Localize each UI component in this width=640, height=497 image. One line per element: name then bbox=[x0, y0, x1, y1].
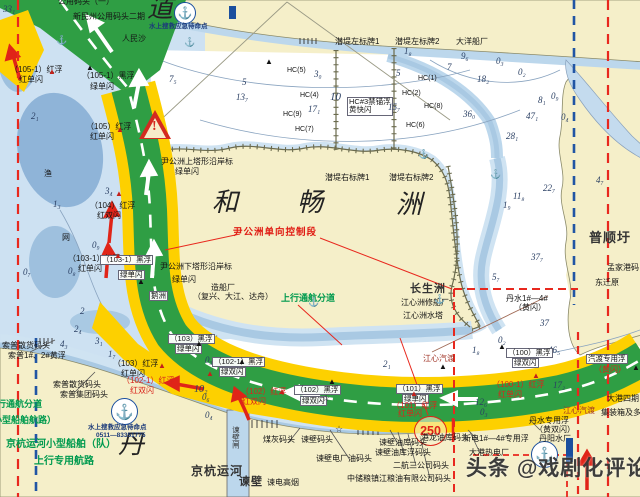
label-hc9: HC(9) bbox=[283, 111, 302, 119]
label-suopu-group-pier: 索普集团码头 bbox=[60, 391, 108, 400]
label-suopu-bulk-pier-2: 索普散货码头 bbox=[53, 381, 101, 390]
label-hc2: HC(2) bbox=[402, 90, 421, 98]
label-hc4: HC(4) bbox=[300, 92, 319, 100]
label-buoy-105-1-red-flash: 红单闪 bbox=[19, 76, 43, 85]
red-buoy-icon: ▲ bbox=[115, 190, 123, 198]
depth-value: 4₃ bbox=[60, 339, 68, 349]
blue-beacon-mark bbox=[229, 6, 236, 19]
anchorage-icon: ⚓ bbox=[184, 38, 195, 47]
depth-value: 37 bbox=[540, 318, 549, 328]
red-buoy-icon: ▲ bbox=[206, 370, 214, 378]
label-dayang-shipyard: 大洋船厂 bbox=[456, 38, 488, 47]
depth-value: 3₁ bbox=[95, 336, 103, 346]
label-channel-dao: 道 bbox=[147, 0, 173, 23]
label-ezhou: 鹅洲 bbox=[149, 291, 168, 301]
label-suopu-buoys: 索普1#、2#黄浮 bbox=[8, 352, 66, 361]
label-buoy-102-1-red: （102-1）红浮 bbox=[122, 377, 174, 386]
depth-value: 2 bbox=[80, 306, 85, 316]
warning-triangle-icon: ! bbox=[139, 110, 171, 140]
label-buoy-100-1-red: （100-1）红浮 bbox=[492, 381, 544, 390]
depth-value: 1₃ bbox=[53, 199, 61, 209]
depth-value: 7 bbox=[447, 62, 452, 72]
label-buoy-105-1-black: （105-1）黑浮 bbox=[82, 72, 134, 81]
black-buoy-icon: ▲ bbox=[265, 58, 273, 66]
depth-value: 0₇ bbox=[23, 267, 31, 277]
rescue-anchor-logo-bottom: ⚓ bbox=[111, 398, 138, 425]
anchorage-icon: ⚓ bbox=[490, 170, 501, 179]
label-one-way-control-section: 尹公洲单向控制段 bbox=[233, 228, 317, 239]
depth-value: 5₇ bbox=[492, 272, 500, 282]
label-downbound-fairway: 下行通航分道 bbox=[0, 399, 42, 409]
light-star-icon: ☆ bbox=[322, 394, 330, 403]
label-jianbi-power-oil-pier: 谏壁电厂油码头 bbox=[316, 455, 372, 464]
depth-value: 2₄ bbox=[74, 324, 82, 334]
depth-value: 28₁ bbox=[506, 131, 518, 141]
label-jiangxinzhou-watertower: 江心洲水塔 bbox=[403, 312, 443, 321]
label-buoy-105-1-black-flash: 绿单闪 bbox=[90, 83, 114, 92]
label-container-berth: 集装箱及多 bbox=[601, 409, 640, 418]
label-yingongzhou-upper-flash: 绿单闪 bbox=[175, 168, 199, 177]
label-grand-canal-small-vessels: 京杭运河小型船舶（队） bbox=[6, 439, 116, 450]
anchorage-icon: ⚓ bbox=[434, 295, 445, 304]
label-jianbi-oil-depot-pier: 谏壁油库码头 bbox=[379, 439, 427, 448]
label-yingongzhou-lower-mark: 尹公洲下塔形沿岸标 bbox=[160, 263, 232, 272]
label-buoy-103-black: （103）黑浮 bbox=[168, 334, 215, 344]
depth-value: 0₉ bbox=[92, 240, 100, 250]
label-ferry-special-buoy-flash: （黄闪） bbox=[594, 366, 626, 375]
label-buoy-100-black-flash: 绿双闪 bbox=[512, 358, 539, 368]
depth-value: 15₇ bbox=[388, 102, 400, 112]
label-buoy-100-black: （100）黑浮 bbox=[506, 348, 553, 358]
depth-value: 1₇ bbox=[108, 349, 116, 359]
label-buoy-104-red: （104）红浮 bbox=[90, 202, 135, 211]
depth-value: 5 bbox=[396, 68, 401, 78]
depth-value: 12₆ bbox=[475, 397, 487, 407]
depth-value: 7₅ bbox=[169, 74, 177, 84]
nautical-chart: ! ⚓ ⚓ ⚓ 250 头条 @戏剧化评论员 33₁公用码头（一）新民州公用码头… bbox=[0, 0, 640, 497]
anchorage-icon: ⚓ bbox=[308, 298, 319, 307]
red-buoy-icon: ▲ bbox=[158, 362, 166, 370]
label-jianbi: 谏壁 bbox=[239, 476, 263, 488]
depth-value: 37₇ bbox=[531, 252, 543, 262]
black-buoy-icon: ▲ bbox=[328, 378, 336, 386]
label-buoy-102-1-red-flash: 红双闪 bbox=[130, 387, 154, 396]
red-buoy-icon: ▲ bbox=[278, 388, 286, 396]
label-meihui-pier: 煤灰码头 bbox=[263, 436, 295, 445]
depth-value: 18₂ bbox=[477, 74, 489, 84]
label-fishing-yu: 渔 bbox=[44, 170, 52, 179]
label-ganglong-pier: 港龙油库码头 bbox=[421, 434, 469, 443]
label-rescue-phone: 0511—83351775 bbox=[96, 432, 146, 439]
depth-value: 0₂ bbox=[518, 67, 526, 77]
label-island-zhou: 洲 bbox=[396, 190, 422, 219]
label-mengjiagang: 孟家港码 bbox=[607, 264, 639, 273]
label-qiandi-left-1: 潜堤左标牌1 bbox=[335, 38, 379, 47]
label-rescue-bottom: 水上搜救应急待命点 bbox=[88, 424, 147, 431]
label-hc1: HC(1) bbox=[418, 75, 437, 83]
label-buoy-102-red-flash: 红双闪 bbox=[242, 398, 266, 407]
label-buoy-102-black: （102）黑浮 bbox=[294, 385, 341, 395]
label-buoy-101-black: （101）黑浮 bbox=[396, 384, 443, 394]
label-buoy-101-red-flash: 红单闪 bbox=[398, 410, 422, 419]
label-buoy-105-red-flash: 红单闪 bbox=[90, 133, 114, 142]
depth-value: 4₇ bbox=[596, 175, 604, 185]
depth-value: 11₈ bbox=[513, 191, 524, 201]
black-buoy-icon: ▲ bbox=[137, 278, 145, 286]
depth-value: 17₂ bbox=[553, 380, 565, 390]
label-hc5: HC(5) bbox=[287, 67, 306, 75]
depth-value: 5 bbox=[242, 77, 247, 87]
label-xinminzhou-pier2: 新民州公用码头二期 bbox=[73, 13, 145, 22]
red-buoy-icon: ▲ bbox=[410, 390, 418, 398]
rescue-anchor-logo-top: ⚓ bbox=[174, 2, 196, 24]
label-qiandi-right-1: 潜堤右标牌1 bbox=[325, 174, 369, 183]
depth-value: 0₄ bbox=[561, 112, 569, 122]
label-small-vessel-route: （小型船舶航路） bbox=[0, 415, 56, 425]
depth-value: 0₉ bbox=[551, 91, 559, 101]
depth-value: 0₃ bbox=[496, 56, 504, 66]
label-dongqianyuan: 东迁原 bbox=[595, 279, 619, 288]
label-jianbi-oil-depot-float: 谏壁油库浮码头 bbox=[375, 449, 431, 458]
depth-value: 13₇ bbox=[236, 92, 248, 102]
label-pushunwei: 普顺圩 bbox=[589, 231, 631, 246]
label-suopu-bulk-pier: 索普散货码头 bbox=[2, 342, 50, 351]
black-buoy-icon: ▲ bbox=[632, 364, 640, 372]
depth-value: 2₁ bbox=[31, 111, 39, 121]
warning-exclamation: ! bbox=[152, 119, 157, 135]
red-buoy-icon: ▲ bbox=[116, 126, 124, 134]
label-grand-canal: 京杭运河 bbox=[191, 465, 243, 478]
black-buoy-icon: ▲ bbox=[498, 343, 506, 351]
label-qiandi-left-2: 潜堤左标牌2 bbox=[395, 38, 439, 47]
anchorage-icon: ⚓ bbox=[56, 36, 67, 45]
red-buoy-icon: ▲ bbox=[114, 252, 122, 260]
light-star-icon: ☆ bbox=[335, 425, 343, 434]
red-buoy-icon: ▲ bbox=[532, 372, 540, 380]
label-zhongchuliang-pier: 中储粮镇江粮油有限公司码头 bbox=[347, 475, 451, 484]
label-dagang-phase4: 大港四期 bbox=[607, 395, 639, 404]
label-buoy-103-1-red-flash: 红单闪 bbox=[78, 265, 102, 274]
label-shipyard-names: （复兴、大江、达舟） bbox=[193, 293, 273, 302]
depth-value: 36₀ bbox=[463, 109, 475, 119]
anchorage-icon: ⚓ bbox=[418, 150, 429, 159]
label-hc8: HC(8) bbox=[424, 103, 443, 111]
label-rescue-top: 水上搜救应急待命点 bbox=[149, 23, 208, 30]
red-buoy-icon: ▲ bbox=[48, 68, 56, 76]
black-buoy-icon: ▲ bbox=[238, 358, 246, 366]
label-yingongzhou-upper-mark: 尹公洲上塔形沿岸标 bbox=[161, 158, 233, 167]
depth-value: 22₇ bbox=[543, 183, 555, 193]
label-ferry-special-buoy: 汽渡专用浮 bbox=[586, 354, 628, 364]
label-buoy-103-1-black: （103-1）黑浮 bbox=[100, 255, 153, 265]
label-upbound-special-route: 上行专用航路 bbox=[34, 456, 94, 467]
label-island-chang: 畅 bbox=[297, 188, 323, 217]
label-qiandi-right-2: 潜堤右标牌2 bbox=[389, 174, 433, 183]
depth-value: 1₈ bbox=[472, 345, 480, 355]
label-hc7: HC(7) bbox=[295, 126, 314, 134]
label-buoy-103-red: （103）红浮 bbox=[113, 360, 158, 369]
depth-value: 0₆ bbox=[202, 392, 210, 402]
depth-value: 0₃ bbox=[480, 407, 488, 417]
depth-value: 9₆ bbox=[461, 51, 469, 61]
label-buoy-104-red-flash: 红双闪 bbox=[97, 212, 121, 221]
label-buoy-102-1-black-flash: 绿双闪 bbox=[219, 367, 246, 377]
depth-value: 3₄ bbox=[105, 186, 113, 196]
depth-value: 3₀ bbox=[314, 69, 322, 79]
label-jianbi-lock: 谏壁闸 bbox=[231, 426, 239, 449]
label-jiangxin-ferry-2: 江心汽渡 bbox=[563, 407, 595, 416]
depth-value: 0₈ bbox=[68, 266, 76, 276]
depth-value: 0₄ bbox=[205, 410, 213, 420]
label-jianbi-pier: 谏壁码头 bbox=[301, 436, 333, 445]
depth-value: 10 bbox=[330, 91, 341, 103]
label-hc6: HC(6) bbox=[406, 122, 425, 130]
label-buoy-100-1-red-flash: 红单闪 bbox=[498, 391, 522, 400]
label-island-he: 和 bbox=[212, 188, 238, 217]
depth-value: 17₁ bbox=[308, 104, 320, 114]
label-fishing-wang: 网 bbox=[62, 234, 70, 243]
label-erhangsan-pier: 二航三公司码头 bbox=[393, 462, 449, 471]
depth-value: 1₉ bbox=[503, 200, 511, 210]
black-buoy-icon: ▲ bbox=[195, 340, 203, 348]
label-buoy-105-red: （105）红浮 bbox=[86, 123, 131, 132]
depth-value: 8₁ bbox=[538, 95, 546, 105]
label-yingongzhou-lower-flash: 绿单闪 bbox=[172, 276, 196, 285]
label-dagang-power: 大港热电厂 bbox=[469, 449, 509, 458]
depth-value: 1₈ bbox=[404, 46, 412, 56]
label-danyang-waterworks: 丹阳水厂 bbox=[539, 435, 571, 444]
black-buoy-icon: ▲ bbox=[439, 363, 447, 371]
depth-value: 47₁ bbox=[526, 111, 538, 121]
depth-value: 33₁ bbox=[3, 4, 15, 14]
black-buoy-icon: ▲ bbox=[86, 64, 94, 72]
label-hc3-no-anchor-buoy: HC#3禁锚浮 黄快闪 bbox=[347, 97, 393, 116]
label-danshui-buoys-flash: （黄闪） bbox=[514, 304, 546, 313]
depth-value: 2₁ bbox=[383, 359, 391, 369]
label-pier-phase1: 公用码头（一） bbox=[58, 0, 114, 7]
label-xindian-buoys: 新电1#—4#专用浮 bbox=[463, 435, 529, 444]
label-jiandian-chimney: 谏电高烟 bbox=[267, 479, 299, 488]
label-renminsha: 人民沙 bbox=[122, 35, 146, 44]
